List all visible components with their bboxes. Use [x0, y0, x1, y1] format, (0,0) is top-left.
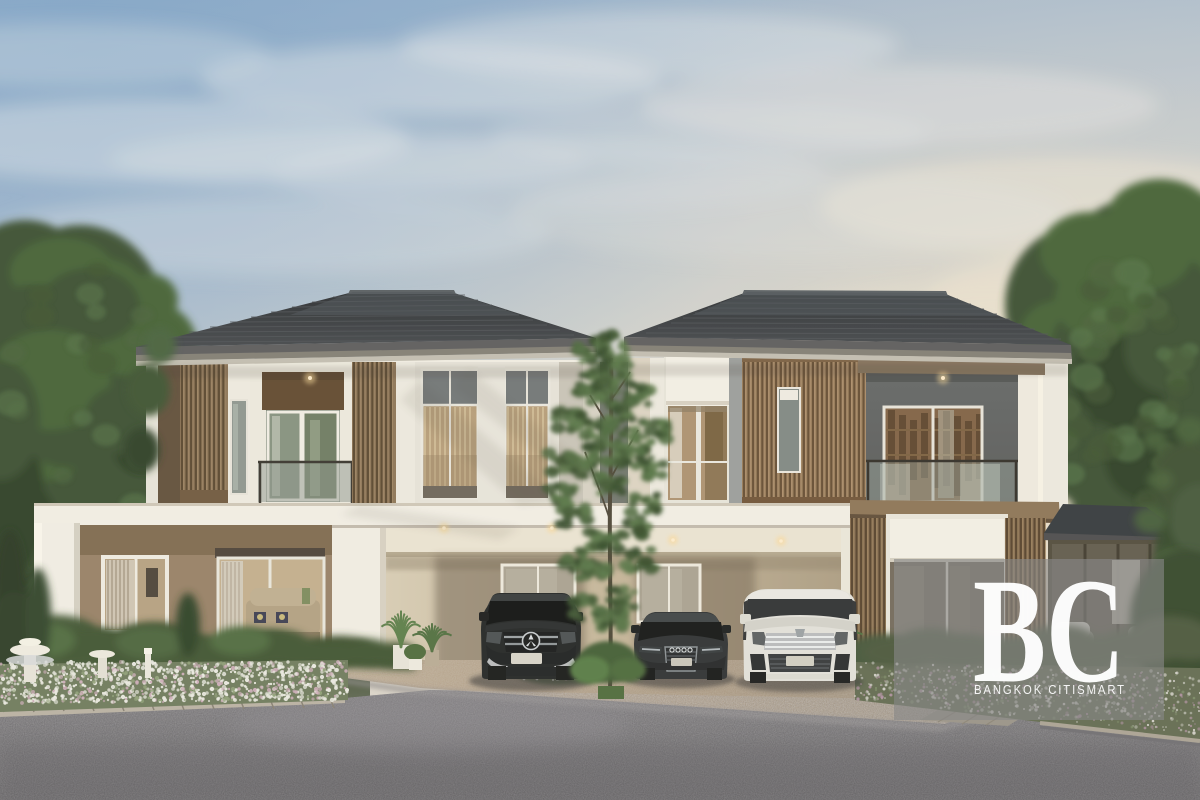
svg-text:BANGKOK CITISMART: BANGKOK CITISMART — [974, 682, 1126, 697]
